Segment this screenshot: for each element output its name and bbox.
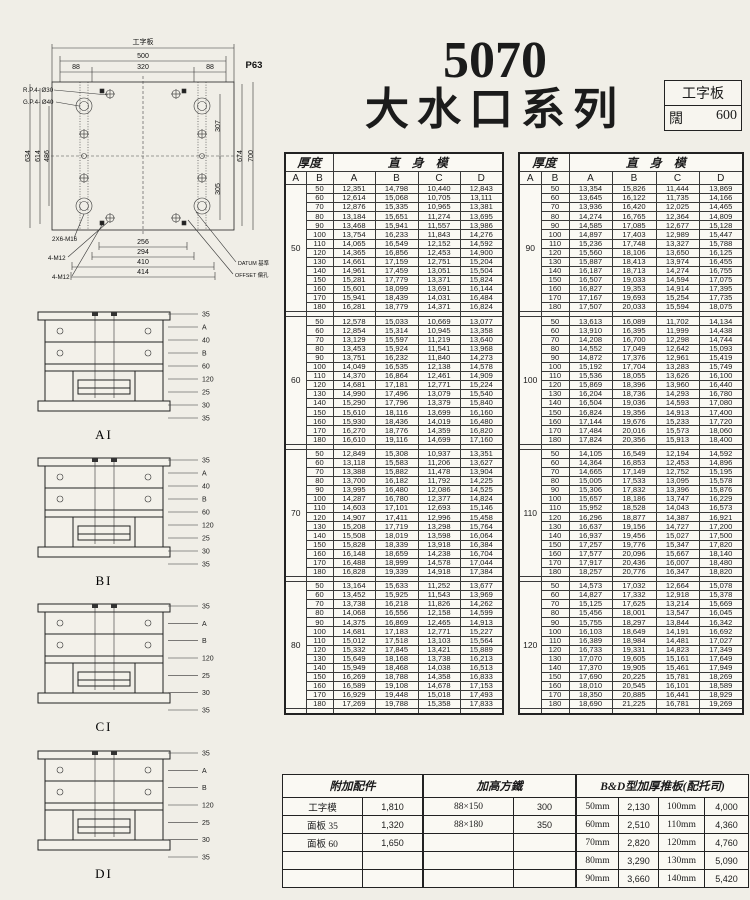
table-cell: 11,792 [418,476,460,485]
table-cell: 12,752 [656,467,699,476]
table-cell: 14,371 [418,303,460,312]
table-row: 14015,94918,46814,03816,513 [285,663,503,672]
table-cell: 14,019 [418,417,460,426]
table-cell: 70 [541,600,569,609]
table-row: 8014,55217,04912,64215,093 [519,344,743,353]
table-cell: 160 [306,681,333,690]
table-cell: 150 [306,540,333,549]
table-cell: 150 [306,408,333,417]
table-cell: 18,788 [375,672,418,681]
diagram-dim-label: A [202,325,207,332]
table-cell: 15,601 [333,285,375,294]
table-cell [514,870,576,888]
table-row: 16015,93018,43614,01916,480 [285,417,503,426]
table-cell: 17,507 [569,303,612,312]
table-cell: 90mm [577,870,619,888]
column-header: 直 身 模 [569,153,743,172]
column-header: 厚度 [519,153,569,172]
mold-stack [38,751,170,850]
table-cell: 60mm [577,816,619,834]
table-cell: 120 [541,248,569,257]
table-cell: 11,206 [418,458,460,467]
table-cell: 15,504 [460,266,503,275]
table-cell: 13,079 [418,390,460,399]
table-row: 10013,75416,23311,84314,276 [285,230,503,239]
table-cell: 17,493 [460,691,503,700]
table-cell: 14,359 [418,426,460,435]
table-cell: 15,146 [460,504,503,513]
table-cell: 12,751 [418,257,460,266]
table-cell: 17,384 [460,567,503,576]
table-cell: 19,339 [375,567,418,576]
table-cell: 17,400 [699,408,743,417]
table-cell: 17,403 [612,230,656,239]
table-cell: 110 [541,504,569,513]
table-cell: 160 [306,417,333,426]
table-row [283,870,423,888]
table-cell: 16,733 [569,645,612,654]
table-row: 9013,99516,48012,08614,525 [285,486,503,495]
table-row: 16017,14419,67615,23317,720 [519,417,743,426]
table-cell: 15,583 [375,458,418,467]
table-cell: 90 [541,221,569,230]
table-cell: 13,968 [460,344,503,353]
table-cell: 17,917 [569,558,612,567]
table-cell: 工字模 [283,798,363,816]
table-cell: 17,153 [460,681,503,690]
table-cell: 13,214 [656,600,699,609]
bottom-table-title: 附加配件 [283,775,423,798]
table-cell: 12,614 [333,194,375,203]
table-cell: 14,661 [333,257,375,266]
table-cell: 15,651 [375,212,418,221]
table-cell: 20,096 [612,549,656,558]
table-cell: 50 [541,581,569,590]
table-cell: 17,720 [699,417,743,426]
table-row: 11015,23617,74813,32715,788 [519,239,743,248]
table-cell: 16,864 [375,371,418,380]
table-cell: 16,856 [375,248,418,257]
table-cell: 17,085 [612,221,656,230]
table-cell: 13,613 [569,317,612,326]
series-name: 大水口系列 [330,86,660,134]
table-cell: 18,297 [612,618,656,627]
table-cell: 60 [285,317,306,444]
table-row: 14016,18718,71314,27416,755 [519,266,743,275]
table-cell: 17,690 [569,672,612,681]
table-row: 8014,27416,76512,36414,809 [519,212,743,221]
table-row: 14016,93719,45615,02717,500 [519,531,743,540]
table-row: 18018,25720,77616,34718,820 [519,567,743,576]
table-cell: 15,033 [375,317,418,326]
column-header: B [306,172,333,185]
table-cell: 110 [541,239,569,248]
table-cell: 13,986 [460,221,503,230]
diagram-dimension-labels: 35A40B60120253035 [168,458,214,569]
table-cell: 16,824 [569,408,612,417]
table-cell: 16,125 [699,248,743,257]
table-cell: 19,788 [375,700,418,709]
table-cell: 13,371 [418,275,460,284]
diagram-dim-label: 120 [202,656,214,663]
table-cell: 110 [306,636,333,645]
table-cell: 17,704 [612,362,656,371]
table-cell: 90 [541,353,569,362]
table-cell: 15,306 [569,486,612,495]
table-cell: 15,012 [333,636,375,645]
table-cell: 11,444 [656,185,699,194]
table-cell: 14,274 [656,266,699,275]
table-cell: 13,627 [460,458,503,467]
table-cell: 14,914 [656,285,699,294]
table-cell: 50 [541,449,569,458]
table-cell: 70 [541,467,569,476]
table-cell: 14,678 [418,681,460,690]
table-cell: 130 [541,522,569,531]
table-cell: 20,885 [612,691,656,700]
table-cell: 140 [541,266,569,275]
table-cell: 16,213 [460,654,503,663]
table-cell [283,870,363,888]
table-cell: 13,598 [418,531,460,540]
table-row [424,870,576,888]
table-cell: 170 [306,691,333,700]
table-cell: 170 [306,426,333,435]
table-cell: 12,849 [333,449,375,458]
table-cell: 15,378 [699,591,743,600]
table-cell: 150 [541,408,569,417]
callout-m12-b: 4-M12 [52,274,70,281]
table-cell: 15,578 [699,476,743,485]
table-cell: 17,649 [699,654,743,663]
table-cell: 14,552 [569,344,612,353]
table-cell: 50 [306,317,333,326]
table-cell: 14,585 [569,221,612,230]
table-cell: 150 [541,540,569,549]
table-cell: 15,925 [375,591,418,600]
table-cell: 16,480 [460,417,503,426]
table-row: 88×180350 [424,816,576,834]
table-cell: 14,208 [569,335,612,344]
table-cell: 13,754 [333,230,375,239]
table-cell: 19,116 [375,435,418,444]
table-cell: 16,455 [699,257,743,266]
diagram-dim-label: 30 [202,690,210,697]
table-cell: 4,000 [705,798,749,816]
table-cell: 16,488 [333,558,375,567]
table-cell: 90 [541,618,569,627]
table-cell: 19,108 [375,681,418,690]
table-cell: 13,379 [418,399,460,408]
table-cell: 16,535 [375,362,418,371]
table-cell: 18,413 [612,257,656,266]
table-cell: 16,765 [612,212,656,221]
table-cell: 17,183 [375,627,418,636]
table-cell: 15,667 [656,549,699,558]
table-cell: 16,144 [460,285,503,294]
table-cell: 17,149 [612,467,656,476]
table-cell: 14,238 [418,549,460,558]
table-cell: 14,824 [460,495,503,504]
table-cell: 11,219 [418,335,460,344]
table-cell: 15,764 [460,522,503,531]
table-cell: 13,691 [418,285,460,294]
diagram-dim-label: 40 [202,338,210,345]
table-cell: 11,478 [418,467,460,476]
plate-technical-drawing: 工字板 500 88 320 88 P63 634 614 486 307 30… [22,34,290,315]
column-header: A [285,172,306,185]
table-cell: 11,843 [418,230,460,239]
table-cell: 13,904 [460,467,503,476]
table-cell: 14,481 [656,636,699,645]
table-cell: 110 [541,371,569,380]
table-cell: 11,999 [656,326,699,335]
table-cell: 18,439 [375,294,418,303]
table-cell: 17,332 [612,591,656,600]
table-cell: 140 [306,266,333,275]
table-row: 13015,64918,16813,73816,213 [285,654,503,663]
table-cell: 11,735 [656,194,699,203]
table-row: 9014,87217,37612,96115,419 [519,353,743,362]
table-cell: 13,640 [460,335,503,344]
table-cell: 160 [541,549,569,558]
table-cell: 15,290 [333,399,375,408]
table-row: 10014,68117,18312,77115,227 [285,627,503,636]
table-row: 10016,10318,64914,19116,692 [519,627,743,636]
table-cell: 1,810 [363,798,423,816]
table-cell: 16,233 [375,230,418,239]
table-cell: 12,025 [656,203,699,212]
table-cell: 11,274 [418,212,460,221]
table-cell: 15,236 [569,239,612,248]
dim-674: 674 [237,150,244,162]
table-cell: 16,160 [460,408,503,417]
table-cell: 18,929 [699,691,743,700]
table-cell: 12,578 [333,317,375,326]
table-cell: 19,269 [699,700,743,709]
table-cell: 12,876 [333,203,375,212]
table-cell: 16,101 [656,681,699,690]
table-cell: 15,633 [375,581,418,590]
column-header: D [699,172,743,185]
diagram-dim-label: B [202,497,207,504]
table-cell: 17,748 [612,239,656,248]
table-row: 8013,18415,65111,27413,695 [285,212,503,221]
series-number: 5070 [330,36,660,86]
table-row: 14016,50419,03614,59317,080 [519,399,743,408]
table-cell: 16,937 [569,531,612,540]
table-row: 8013,45315,92411,54113,968 [285,344,503,353]
table-cell: 12,453 [656,458,699,467]
table-cell: 120 [541,380,569,389]
table-cell: 100 [519,317,541,444]
riser-block-table: 加高方鐵88×15030088×180350 [423,774,576,888]
table-cell: 13,936 [569,203,612,212]
table-cell: 15,456 [569,609,612,618]
table-row: 9015,75518,29713,84416,342 [519,618,743,627]
table-cell: 15,913 [656,435,699,444]
table-cell: 19,033 [612,275,656,284]
table-cell: 17,032 [612,581,656,590]
dim-634: 634 [25,150,32,162]
table-cell: 15,233 [656,417,699,426]
diagram-dim-label: 35 [202,708,210,715]
table-cell: 16,484 [460,294,503,303]
table-cell: 18,350 [569,691,612,700]
cross-section-diagram-ci: 35AB120253035 CI [30,598,245,738]
table-cell [541,709,569,715]
table-cell: 2,510 [619,816,659,834]
table-cell: 19,036 [612,399,656,408]
table-cell: 14,592 [460,239,503,248]
table-cell: 300 [514,798,576,816]
table-cell: 14,727 [656,522,699,531]
dim-320: 320 [137,64,149,71]
table-cell: 15,869 [569,380,612,389]
table-cell [285,709,306,715]
dim-486: 486 [44,150,51,162]
diagram-dim-label: 35 [202,562,210,569]
table-cell: 70mm [577,834,619,852]
table-cell: 18,400 [699,435,743,444]
table-cell: 180 [541,700,569,709]
table-cell: 15,204 [460,257,503,266]
table-cell: 17,832 [612,486,656,495]
column-header: A [519,172,541,185]
table-cell: 16,507 [569,275,612,284]
table-cell: 15,560 [569,248,612,257]
table-row: 9015,30617,83213,39615,876 [519,486,743,495]
table-cell: 19,605 [612,654,656,663]
table-cell: 20,225 [612,672,656,681]
table-cell: 16,296 [569,513,612,522]
diagram-dim-label: A [202,621,207,628]
table-row: 17017,16719,69315,25417,735 [519,294,743,303]
table-cell: 18,779 [375,303,418,312]
table-cell: 13,910 [569,326,612,335]
table-cell: 110 [541,636,569,645]
table-cell: 13,547 [656,609,699,618]
table-row: 16015,60118,09913,69116,144 [285,285,503,294]
table-cell: 18,468 [375,663,418,672]
table-cell: 18,736 [612,390,656,399]
table-row: 10014,04916,53512,13814,578 [285,362,503,371]
table-row: 7013,73816,21811,82614,262 [285,600,503,609]
table-row: 12015,33217,84513,42115,889 [285,645,503,654]
table-cell: 12,465 [418,618,460,627]
table-cell: 16,827 [569,285,612,294]
table-cell: 120 [306,248,333,257]
table-cell: 19,331 [612,645,656,654]
table-cell: 18,339 [375,540,418,549]
table-cell: 13,738 [333,600,375,609]
diagram-dim-label: 120 [202,523,214,530]
table-cell: 14,276 [460,230,503,239]
table-cell: 17,370 [569,663,612,672]
table-cell: 20,356 [612,435,656,444]
table-cell: 13,388 [333,467,375,476]
table-cell: 10,965 [418,203,460,212]
table-cell: 17,845 [375,645,418,654]
table-cell: 14,872 [569,353,612,362]
table-cell: 13,747 [656,495,699,504]
table-cell: 350 [514,816,576,834]
table-cell: 14,068 [333,609,375,618]
table-cell: 14,358 [418,672,460,681]
table-cell: 16,610 [333,435,375,444]
table-cell [699,709,743,715]
table-cell: 面板 60 [283,834,363,852]
table-cell: 15,005 [569,476,612,485]
spec-width-value: 600 [716,108,737,128]
table-cell: 12,364 [656,212,699,221]
table-cell: 14,365 [333,248,375,257]
table-cell: 130 [306,257,333,266]
table-row: 8015,00517,53313,09515,578 [519,476,743,485]
table-cell: 18,099 [375,285,418,294]
table-cell: 14,134 [699,317,743,326]
table-cell: 15,093 [699,344,743,353]
table-cell: 18,690 [569,700,612,709]
table-cell: 12,677 [656,221,699,230]
table-cell: 16,148 [333,549,375,558]
table-cell: 100 [541,627,569,636]
table-row: 88×150300 [424,798,576,816]
dim-700: 700 [248,150,255,162]
table-cell: 18,060 [699,426,743,435]
table-cell: 60 [306,194,333,203]
diagram-dim-label: B [202,785,207,792]
table-cell: 16,637 [569,522,612,531]
table-cell: 15,657 [569,495,612,504]
table-cell: 16,549 [612,449,656,458]
table-cell [460,709,503,715]
table-cell: 11,840 [418,353,460,362]
table-cell: 88×150 [424,798,514,816]
table-cell: 13,421 [418,645,460,654]
table-cell: 16,347 [656,567,699,576]
table-cell: 15,192 [569,362,612,371]
table-row: 7014,66517,14912,75215,195 [519,467,743,476]
table-row: 8013,70016,18211,79214,225 [285,476,503,485]
mold-stack [38,312,170,411]
diagram-dim-label: 30 [202,837,210,844]
table-cell: 12,152 [418,239,460,248]
table-cell: 15,227 [460,627,503,636]
table-cell: 12,461 [418,371,460,380]
cross-section-diagram-bi: 35A40B60120253035 BI [30,452,245,592]
table-cell: 15,161 [656,654,699,663]
table-cell: 13,918 [418,540,460,549]
table-cell: 13,111 [460,194,503,203]
table-cell: 13,677 [460,581,503,590]
table-cell: 90 [306,353,333,362]
column-header: C [656,172,699,185]
table-cell: 120 [541,645,569,654]
dim-500: 500 [137,53,149,60]
table-row: 14014,96117,45913,05115,504 [285,266,503,275]
table-cell: 16,440 [699,380,743,389]
table-cell: 130 [306,654,333,663]
table-cell: 16,229 [699,495,743,504]
table-cell: 18,168 [375,654,418,663]
table-cell: 180 [541,435,569,444]
table-cell: 18,001 [612,609,656,618]
diagram-dim-label: 60 [202,364,210,371]
table-cell: 11,702 [656,317,699,326]
table-cell: 80mm [577,852,619,870]
table-cell [514,834,576,852]
